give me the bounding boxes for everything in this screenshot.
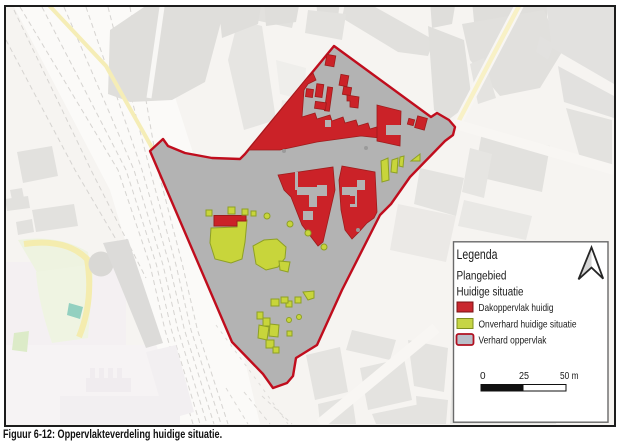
svg-text:Legenda: Legenda xyxy=(457,247,498,262)
svg-text:Verhard oppervlak: Verhard oppervlak xyxy=(479,335,548,347)
svg-text:0: 0 xyxy=(480,371,486,382)
svg-text:50 m: 50 m xyxy=(560,371,579,382)
svg-text:Plangebied: Plangebied xyxy=(457,271,507,283)
svg-text:25: 25 xyxy=(519,371,529,382)
svg-text:Dakoppervlak huidig: Dakoppervlak huidig xyxy=(479,302,554,314)
svg-text:Onverhard huidige situatie: Onverhard huidige situatie xyxy=(479,319,577,331)
svg-text:Huidige situatie: Huidige situatie xyxy=(457,287,524,299)
